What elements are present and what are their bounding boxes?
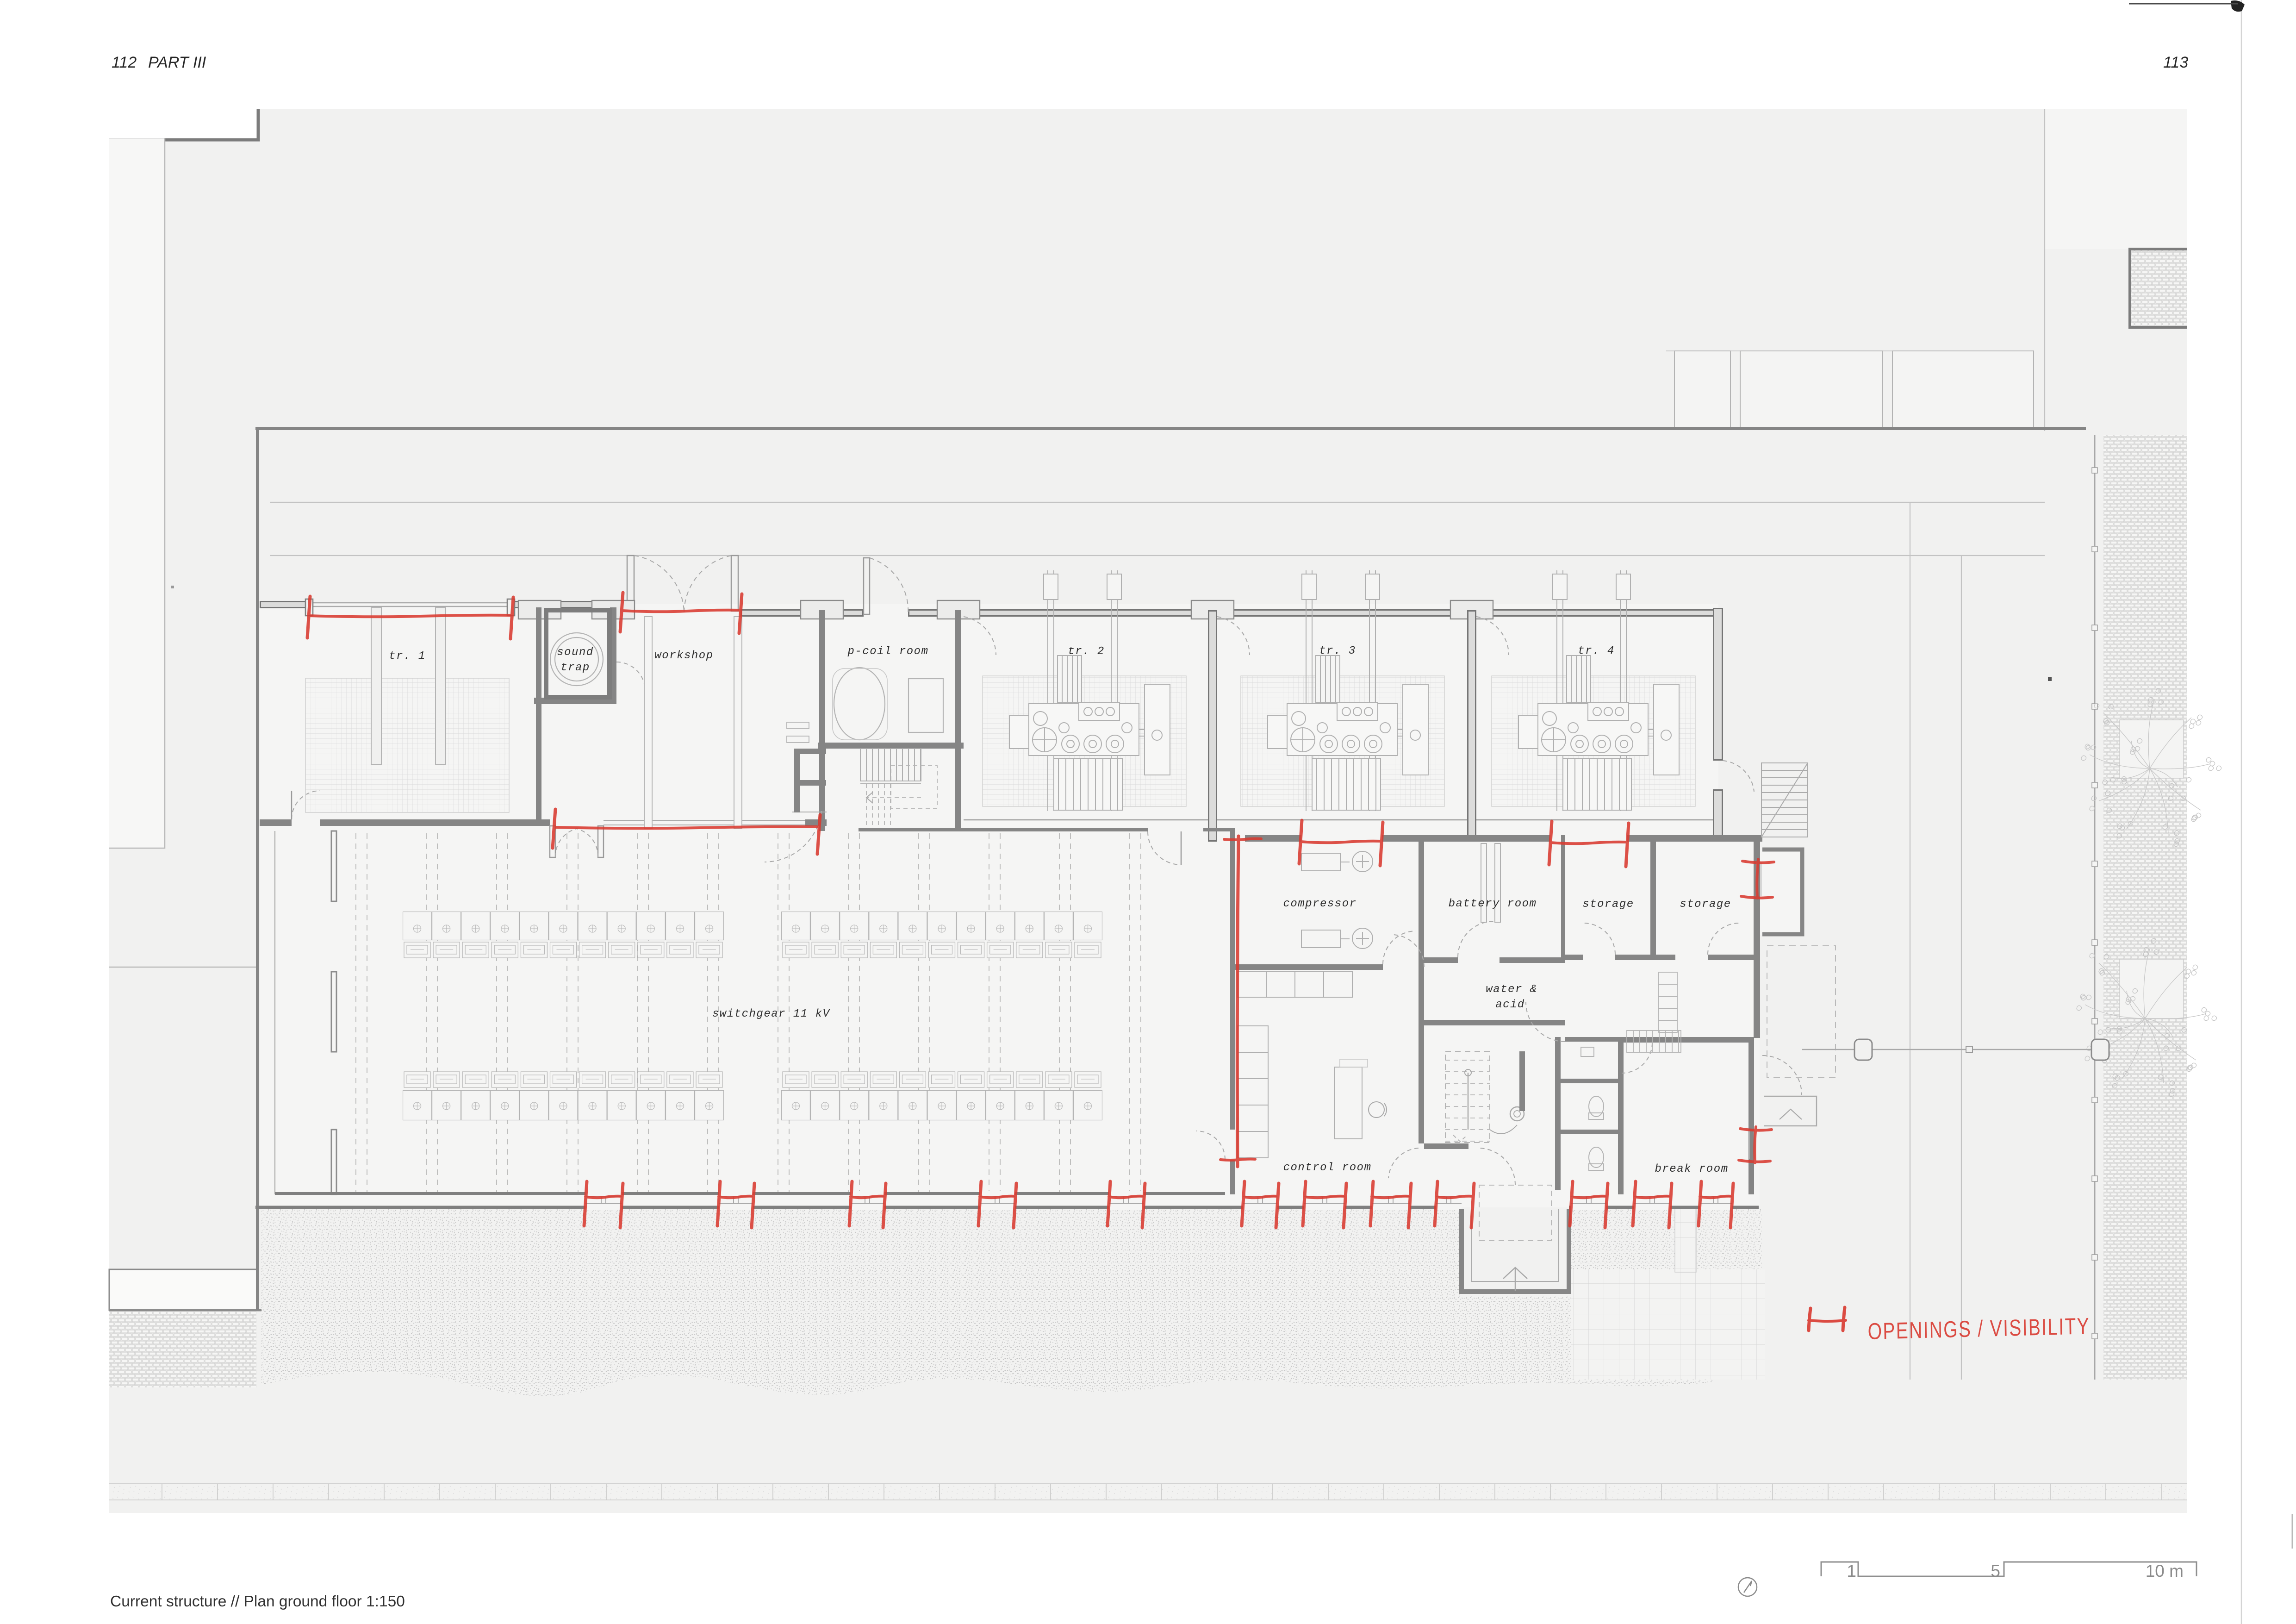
svg-text:PART III: PART III (148, 54, 206, 71)
svg-text:break room: break room (1655, 1163, 1728, 1175)
svg-text:tr. 3: tr. 3 (1319, 645, 1356, 657)
svg-text:battery room: battery room (1449, 898, 1537, 910)
svg-text:sound: sound (557, 646, 594, 659)
svg-text:tr. 1: tr. 1 (389, 650, 426, 662)
svg-text:storage: storage (1680, 898, 1731, 911)
svg-text:OPENINGS / VISIBILITY: OPENINGS / VISIBILITY (1867, 1312, 2090, 1344)
svg-text:tr. 2: tr. 2 (1068, 645, 1105, 658)
svg-text:p-coil room: p-coil room (847, 645, 929, 658)
svg-text:1: 1 (1847, 1562, 1856, 1580)
svg-text:control room: control room (1283, 1162, 1372, 1174)
svg-text:switchgear 11 kV: switchgear 11 kV (712, 1008, 831, 1020)
svg-text:compressor: compressor (1283, 898, 1356, 910)
svg-text:acid: acid (1495, 999, 1525, 1011)
svg-text:tr. 4: tr. 4 (1578, 645, 1615, 657)
svg-text:10 m: 10 m (2146, 1562, 2184, 1580)
svg-text:112: 112 (112, 54, 137, 71)
svg-text:5: 5 (1991, 1562, 2000, 1580)
svg-text:water &: water & (1486, 983, 1537, 996)
svg-text:Current structure // Plan grou: Current structure // Plan ground floor 1… (110, 1593, 405, 1610)
svg-text:trap: trap (560, 662, 590, 674)
svg-text:113: 113 (2163, 54, 2188, 71)
svg-text:workshop: workshop (654, 650, 713, 662)
svg-text:storage: storage (1582, 898, 1634, 911)
